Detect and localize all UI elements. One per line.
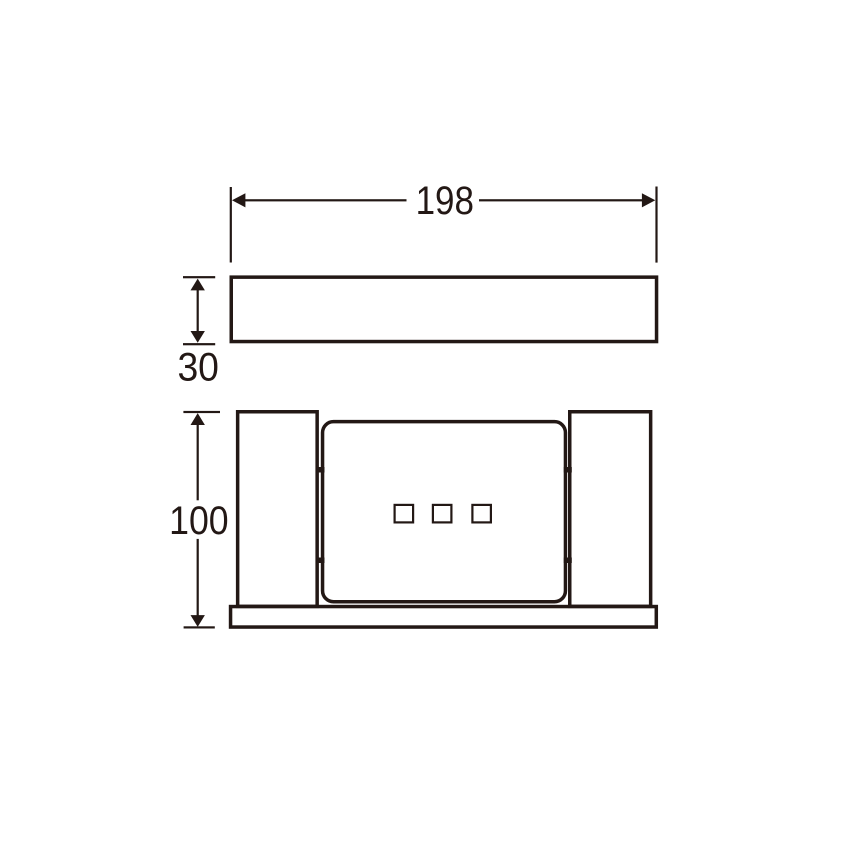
svg-text:198: 198 — [416, 179, 474, 223]
svg-text:30: 30 — [177, 346, 219, 390]
svg-text:100: 100 — [169, 499, 229, 543]
